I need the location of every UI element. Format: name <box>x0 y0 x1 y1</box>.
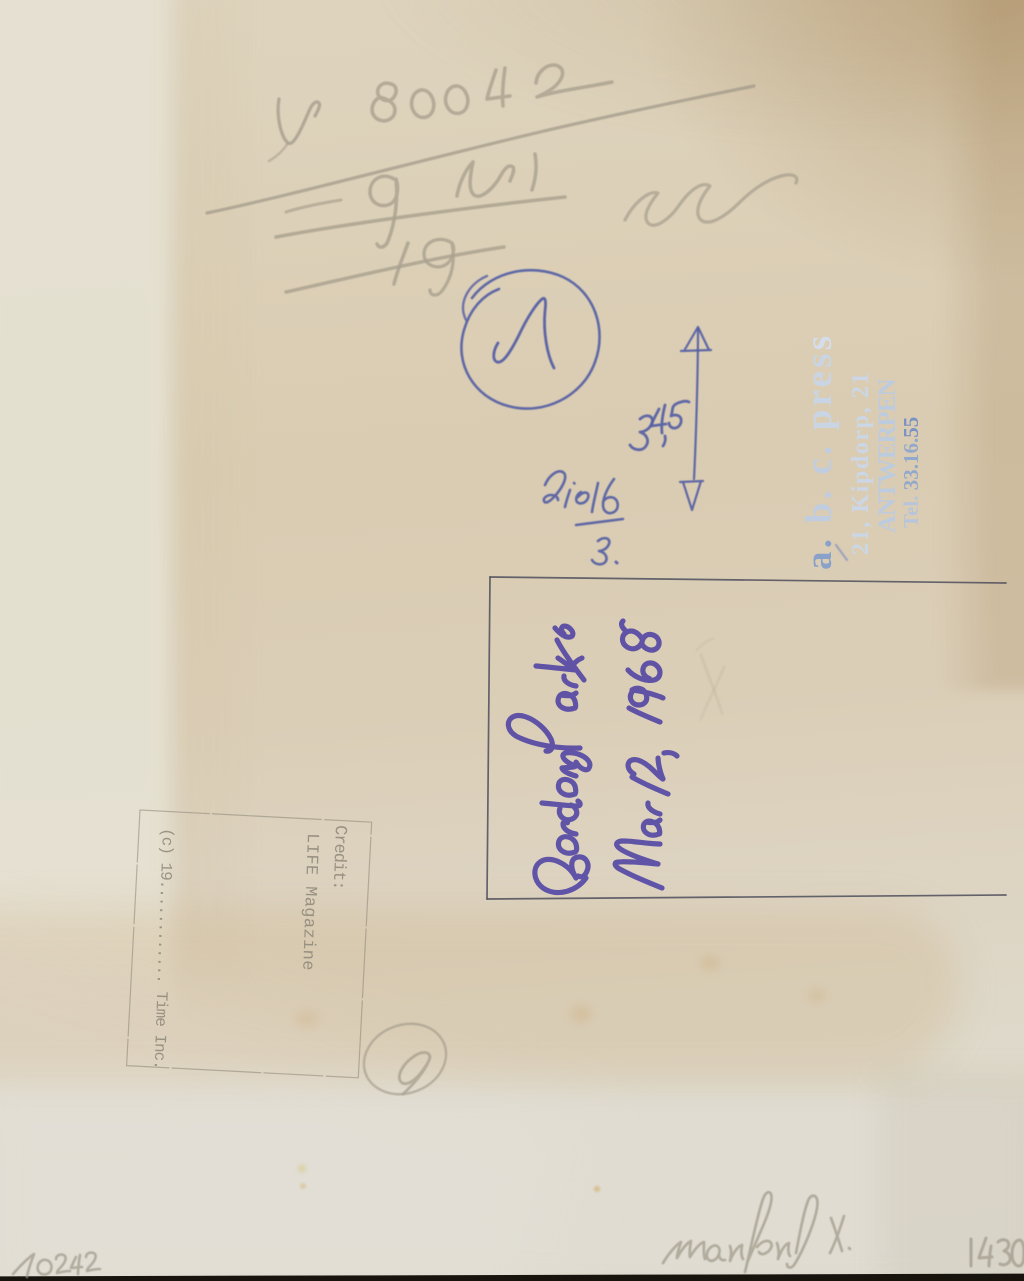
svg-text:a. b. c. press: a. b. c. press <box>799 333 840 570</box>
svg-text:Tel. 33.16.55: Tel. 33.16.55 <box>899 417 923 528</box>
svg-text:(c) 19............ Time Inc.: (c) 19............ Time Inc. <box>150 828 176 1069</box>
svg-text:Credit:: Credit: <box>328 825 349 890</box>
svg-text:ANTWERPEN: ANTWERPEN <box>874 379 901 533</box>
svg-text:21, Kipdorp, 21: 21, Kipdorp, 21 <box>848 371 874 555</box>
svg-text:LIFE Magazine: LIFE Magazine <box>297 833 321 971</box>
